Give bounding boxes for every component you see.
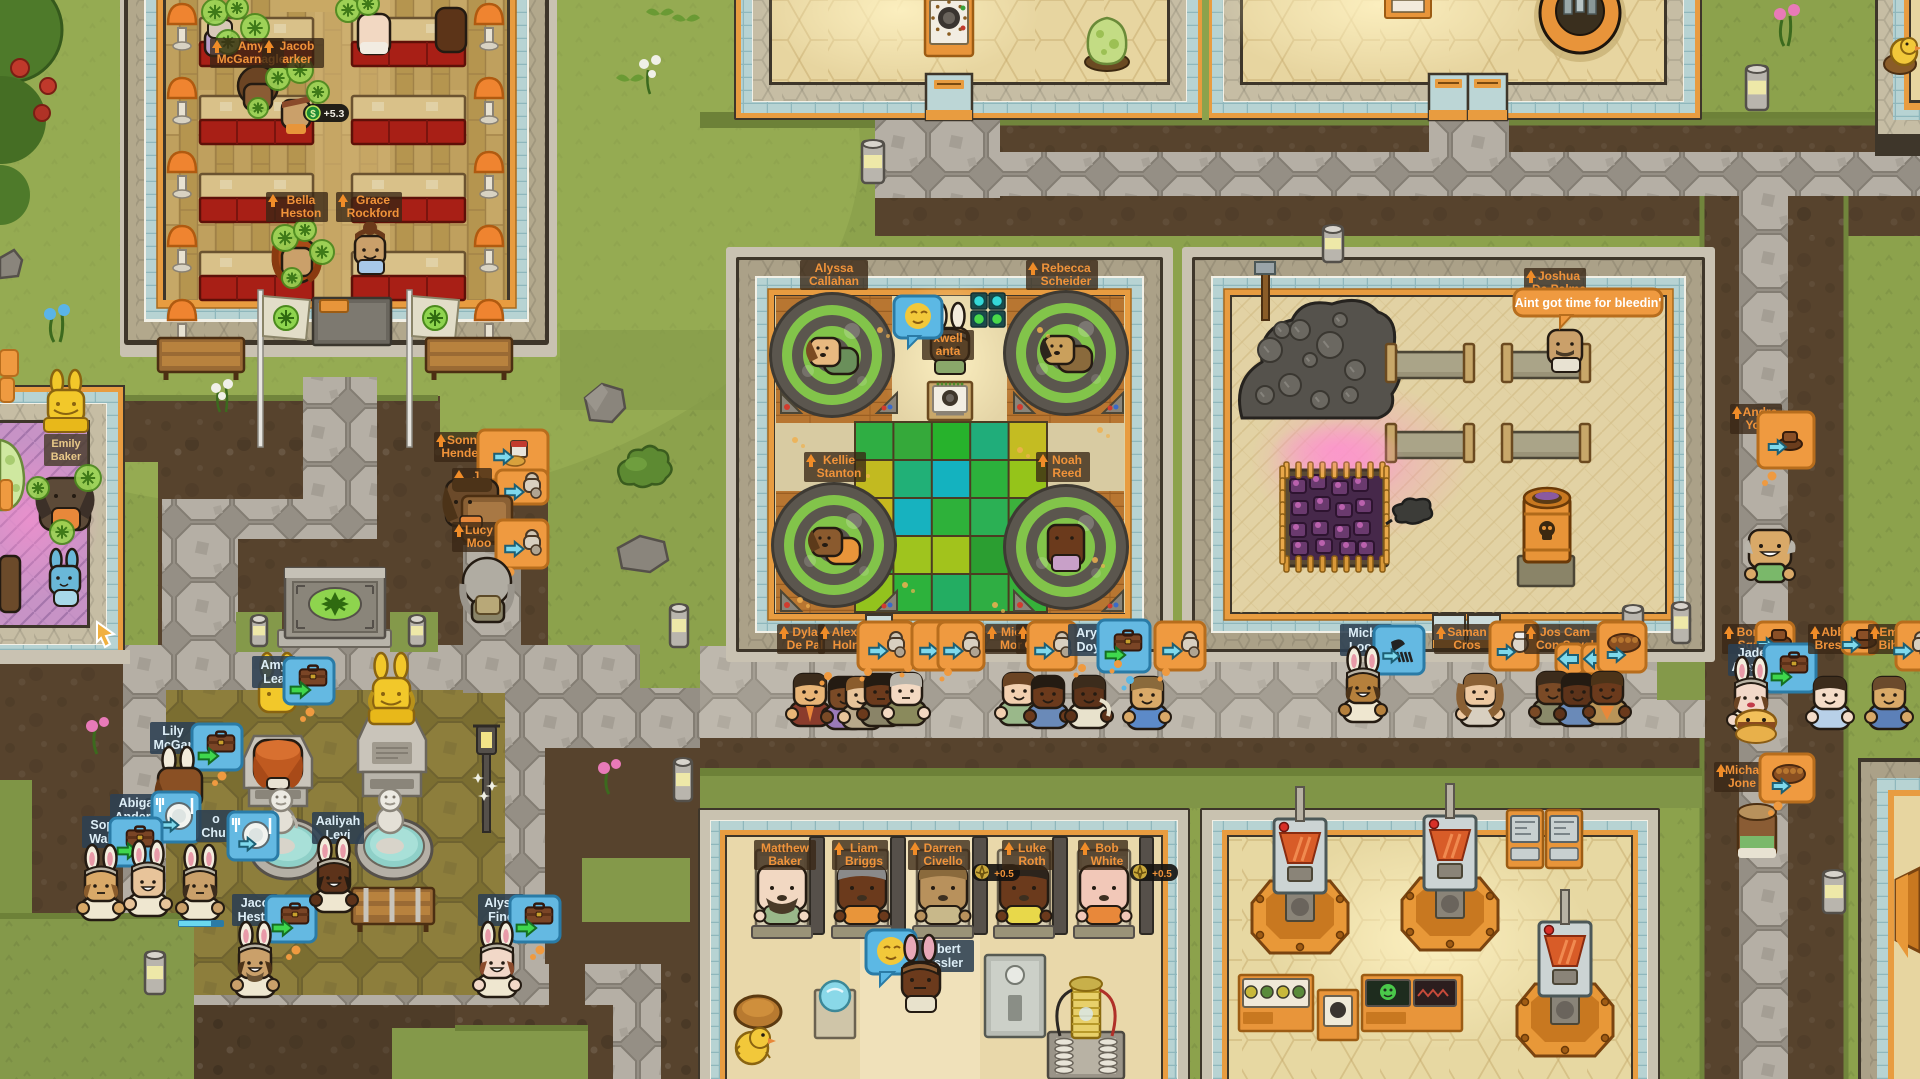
svg-text:o: o bbox=[212, 812, 220, 826]
svg-text:Callahan: Callahan bbox=[809, 274, 859, 288]
svg-text:Aint got time for bleedin': Aint got time for bleedin' bbox=[1515, 296, 1662, 310]
svg-text:+5.3: +5.3 bbox=[324, 108, 345, 120]
svg-text:Chur: Chur bbox=[201, 826, 230, 840]
svg-text:Bob: Bob bbox=[1095, 841, 1118, 855]
svg-text:Noah: Noah bbox=[1052, 453, 1082, 467]
svg-text:$: $ bbox=[310, 109, 316, 120]
svg-text:Scheider: Scheider bbox=[1041, 274, 1092, 288]
svg-text:Civello: Civello bbox=[923, 854, 962, 868]
svg-text:White: White bbox=[1091, 854, 1124, 868]
svg-text:Aaliyah: Aaliyah bbox=[316, 814, 360, 828]
svg-text:Matthew: Matthew bbox=[761, 841, 810, 855]
svg-text:Holn: Holn bbox=[833, 638, 860, 652]
svg-text:Moo: Moo bbox=[467, 536, 492, 550]
svg-text:Baker: Baker bbox=[51, 451, 82, 463]
svg-text:Stanton: Stanton bbox=[817, 466, 862, 480]
svg-text:Joshua: Joshua bbox=[1538, 269, 1580, 283]
svg-text:Jos Cam: Jos Cam bbox=[1540, 625, 1590, 639]
svg-text:Kellie: Kellie bbox=[823, 453, 855, 467]
svg-text:Roth: Roth bbox=[1018, 854, 1045, 868]
svg-text:Rebecca: Rebecca bbox=[1041, 261, 1091, 275]
svg-text:Amy: Amy bbox=[238, 39, 264, 53]
svg-text:De Pal: De Pal bbox=[787, 638, 824, 652]
svg-text:Rockford: Rockford bbox=[347, 206, 400, 220]
svg-text:Grace: Grace bbox=[356, 193, 390, 207]
svg-text:Heston: Heston bbox=[281, 206, 322, 220]
svg-text:arker: arker bbox=[282, 52, 312, 66]
svg-text:Emily: Emily bbox=[51, 438, 81, 450]
svg-text:Abiga: Abiga bbox=[119, 796, 155, 810]
svg-text:Darren: Darren bbox=[924, 841, 963, 855]
svg-text:+0.5: +0.5 bbox=[1152, 869, 1172, 880]
svg-text:Lily: Lily bbox=[162, 724, 184, 738]
svg-text:Sonn: Sonn bbox=[447, 433, 477, 447]
svg-text:anta: anta bbox=[936, 344, 961, 358]
svg-text:Saman: Saman bbox=[1447, 625, 1486, 639]
svg-text:Jone: Jone bbox=[1728, 776, 1756, 790]
svg-text:Dyla: Dyla bbox=[792, 625, 818, 639]
svg-text:Luke: Luke bbox=[1018, 841, 1046, 855]
svg-text:+0.5: +0.5 bbox=[994, 869, 1014, 880]
svg-text:Liam: Liam bbox=[850, 841, 878, 855]
svg-text:Lucy: Lucy bbox=[465, 523, 493, 537]
svg-text:Alyssa: Alyssa bbox=[815, 261, 854, 275]
svg-text:Alexi: Alexi bbox=[832, 625, 861, 639]
svg-text:Cros: Cros bbox=[1453, 638, 1481, 652]
svg-text:Briggs: Briggs bbox=[845, 854, 883, 868]
svg-text:Micha: Micha bbox=[1725, 763, 1759, 777]
svg-text:Lea: Lea bbox=[263, 672, 286, 686]
svg-text:Jacob: Jacob bbox=[280, 39, 315, 53]
svg-text:Baker: Baker bbox=[768, 854, 802, 868]
svg-text:Bella: Bella bbox=[287, 193, 316, 207]
svg-text:Reed: Reed bbox=[1052, 466, 1081, 480]
